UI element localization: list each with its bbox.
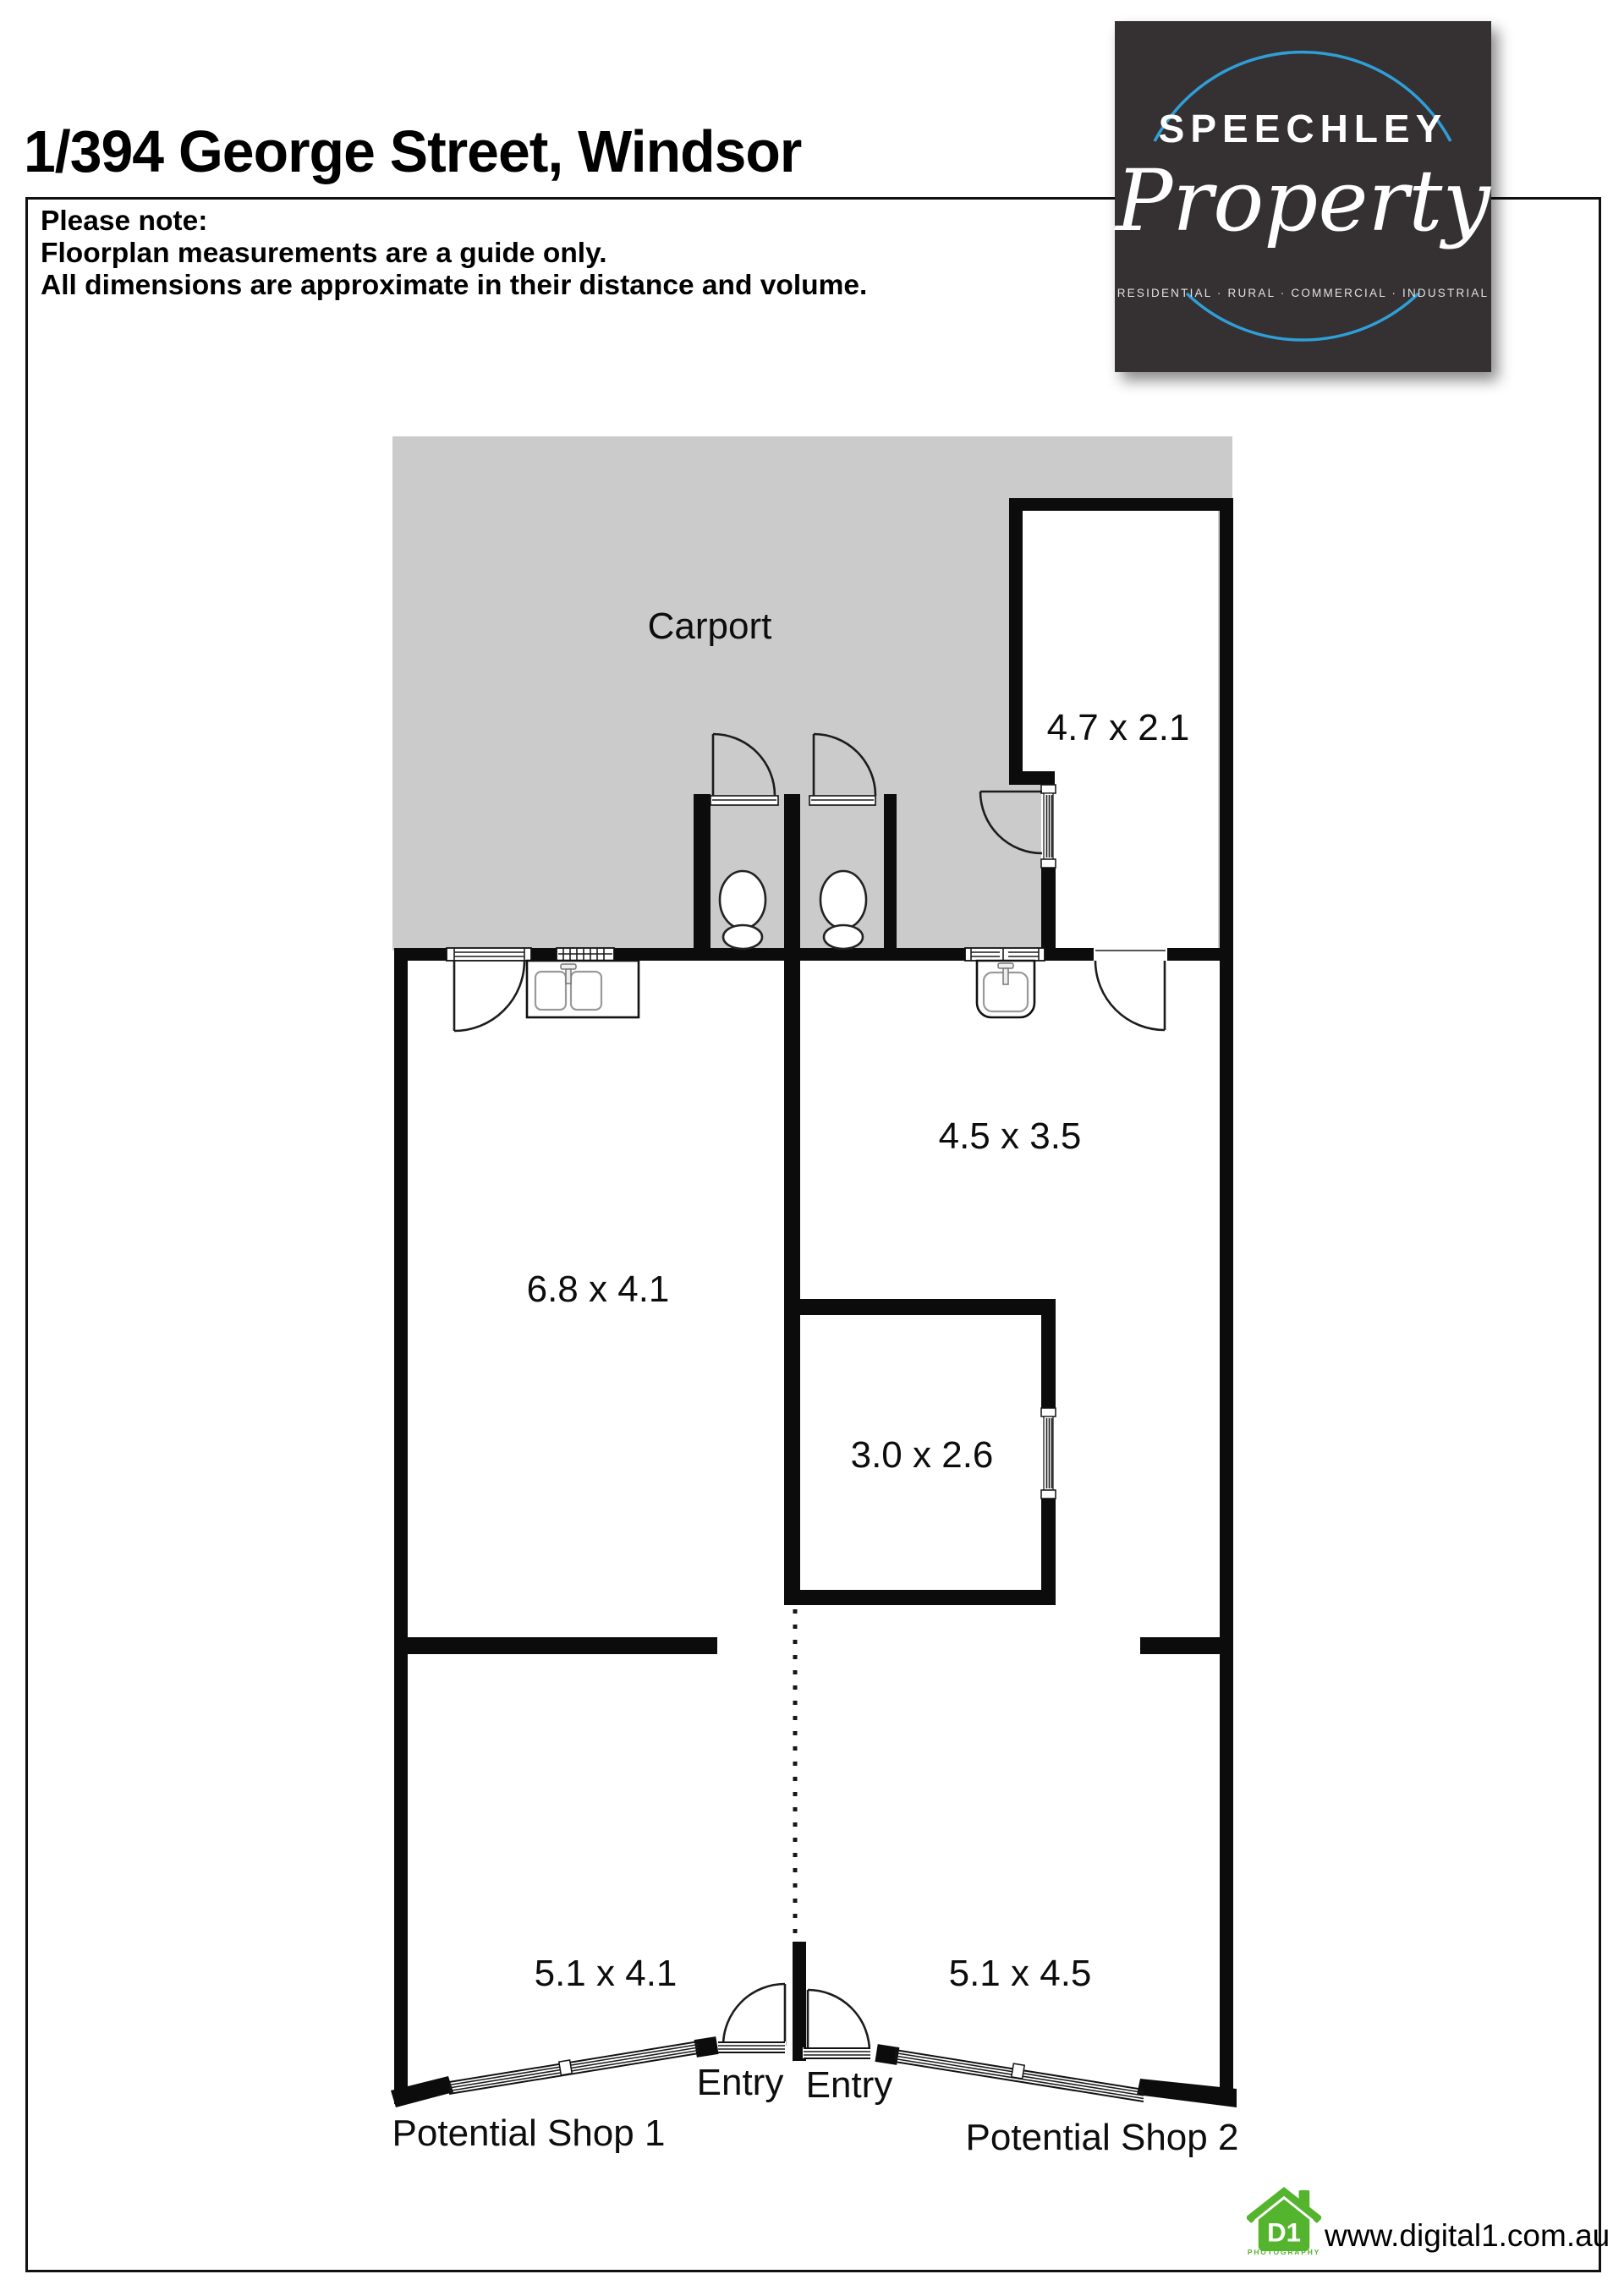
credit-website: www.digital1.com.au: [1325, 2218, 1610, 2254]
left-glass-door-sill: [447, 948, 531, 961]
label-shop1-size: 5.1 x 4.1: [535, 1953, 678, 1994]
label-entry-left: Entry: [697, 2062, 784, 2103]
label-store-4721: 4.7 x 2.1: [1047, 707, 1190, 748]
label-shop1: Potential Shop 1: [392, 2112, 666, 2154]
label-shop2-size: 5.1 x 4.5: [949, 1953, 1092, 1994]
entry-sill-left: [717, 2041, 786, 2052]
digital1-house-icon: D1: [1247, 2187, 1321, 2253]
window-right: [965, 948, 1045, 961]
label-shop2: Potential Shop 2: [966, 2117, 1239, 2158]
shopfront-glazing-left: [449, 2041, 699, 2094]
label-room-6841: 6.8 x 4.1: [527, 1269, 670, 1310]
label-room-3026: 3.0 x 2.6: [851, 1434, 994, 1476]
store-glass-door: [1041, 785, 1056, 868]
digital1-logo-subtext: PHOTOGRAPHY: [1247, 2248, 1321, 2256]
shopfront-glazing-right: [895, 2050, 1144, 2101]
toilet-icon: [720, 871, 765, 949]
entry-sill-right: [803, 2047, 871, 2058]
sink-window-left: [557, 948, 614, 961]
door-right-sill: [1094, 948, 1167, 961]
label-entry-right: Entry: [806, 2064, 893, 2106]
toilet-icon: [820, 871, 866, 949]
label-room-4535: 4.5 x 3.5: [939, 1115, 1082, 1157]
double-sink-icon: [527, 961, 639, 1017]
floorplan: Carport 4.7 x 2.1 4.5 x 3.5 6.8 x 4.1 3.…: [0, 0, 1624, 2296]
sink-icon: [977, 961, 1034, 1017]
room-3026-window: [1041, 1408, 1056, 1499]
label-carport: Carport: [648, 606, 772, 647]
floorplan-page: 1/394 George Street, Windsor Please note…: [0, 0, 1624, 2296]
digital1-logo-text: D1: [1267, 2217, 1301, 2247]
